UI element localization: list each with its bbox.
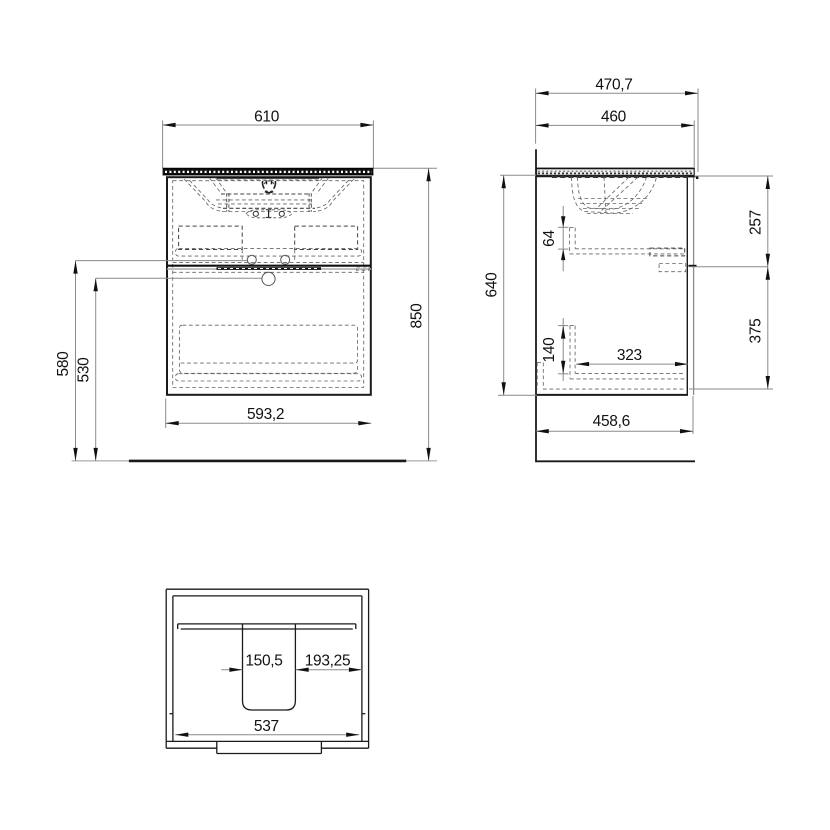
svg-text:140: 140 [541,337,558,363]
svg-text:64: 64 [541,230,558,247]
svg-text:530: 530 [76,357,93,383]
svg-text:850: 850 [409,303,426,329]
svg-text:537: 537 [254,718,279,735]
svg-text:580: 580 [55,351,72,377]
svg-text:610: 610 [254,109,280,126]
svg-text:460: 460 [601,109,627,126]
svg-text:640: 640 [483,272,500,298]
svg-text:470,7: 470,7 [595,77,632,94]
svg-text:257: 257 [748,210,765,235]
svg-text:458,6: 458,6 [593,413,630,430]
svg-text:323: 323 [617,347,642,364]
svg-text:193,25: 193,25 [305,653,351,670]
svg-text:150,5: 150,5 [245,653,282,670]
svg-text:593,2: 593,2 [247,406,284,423]
svg-text:375: 375 [748,319,765,344]
